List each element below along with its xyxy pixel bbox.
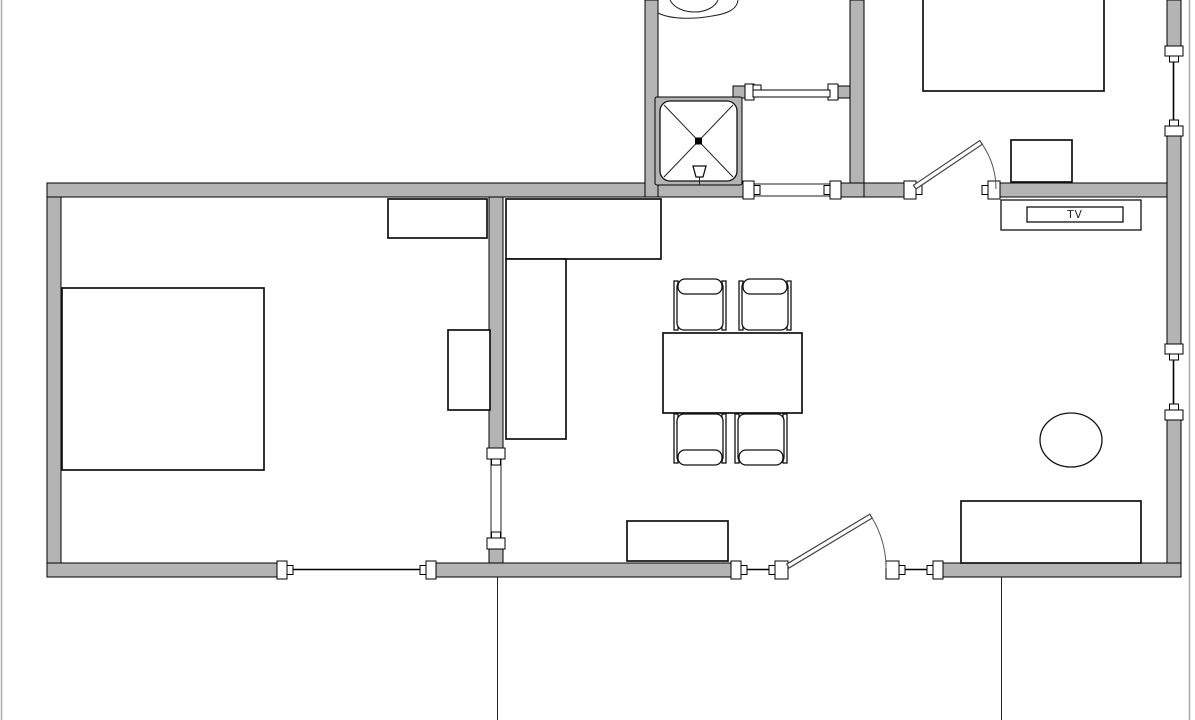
kitchen-counter-top-run xyxy=(506,199,661,259)
chair-backrest xyxy=(678,450,722,465)
window-bedroom1-bottom[interactable] xyxy=(277,561,436,579)
door-jamb xyxy=(904,181,916,199)
window-right-upper[interactable] xyxy=(1165,46,1183,136)
opening-jamb xyxy=(743,181,754,199)
bed-bedroom1[interactable] xyxy=(62,288,264,470)
opening-jamb xyxy=(830,181,841,199)
window-jamb xyxy=(277,561,287,579)
window-jamb-tab xyxy=(1170,404,1179,410)
opening-jamb xyxy=(487,448,505,459)
window-jamb-tab xyxy=(1170,354,1179,360)
bedroom2-door[interactable] xyxy=(904,141,1000,199)
window-jamb xyxy=(426,561,436,579)
shower-head-icon xyxy=(693,166,706,177)
oval-side-table[interactable] xyxy=(1040,413,1102,467)
wall-opening-bedroom1[interactable] xyxy=(487,448,505,549)
opening-jamb xyxy=(487,538,505,549)
floor-plan-canvas: TV xyxy=(0,0,1195,720)
sideboard[interactable] xyxy=(627,521,728,561)
door-jamb xyxy=(988,181,1000,199)
bathroom-sliding-door[interactable] xyxy=(745,84,838,100)
window-jamb xyxy=(1165,410,1183,420)
chair-backrest xyxy=(743,279,787,294)
dresser-bedroom1[interactable] xyxy=(388,199,487,238)
door-jamb-tab xyxy=(769,566,775,575)
wall-bedroom2-right-of-door xyxy=(1000,183,1167,197)
door-jamb xyxy=(775,561,788,579)
wall-right-bottom xyxy=(1167,420,1181,577)
kitchen-counter-left-run xyxy=(506,259,566,439)
dining-chair-bottom-left[interactable] xyxy=(674,414,726,465)
sliding-door-panel xyxy=(753,90,830,97)
window-jamb-tab xyxy=(741,566,747,575)
sofa[interactable] xyxy=(961,501,1141,563)
window-jamb xyxy=(1165,344,1183,354)
door-leaf xyxy=(913,141,982,189)
tv-label: TV xyxy=(1066,209,1083,221)
dining-table[interactable] xyxy=(663,333,802,413)
wall-opening-hall[interactable] xyxy=(743,181,841,199)
dining-chair-top-right[interactable] xyxy=(739,279,791,330)
window-jamb xyxy=(1165,46,1183,56)
window-jamb-tab xyxy=(287,566,293,575)
window-jamb xyxy=(933,561,943,579)
chair-backrest xyxy=(678,279,722,294)
opening-jamb-tab xyxy=(492,532,501,538)
window-jamb-tab xyxy=(1170,120,1179,126)
wall-bottom-center-segment xyxy=(436,563,731,577)
window-terrace-right[interactable] xyxy=(899,561,943,579)
shower-drain xyxy=(695,138,702,145)
bed-bedroom2[interactable] xyxy=(923,0,1104,91)
door-swing-arc xyxy=(872,518,886,568)
dining-chair-top-left[interactable] xyxy=(674,279,726,330)
wall-bottom-left-segment xyxy=(47,563,277,577)
door-jamb-tab xyxy=(982,186,988,195)
window-terrace-left[interactable] xyxy=(731,561,775,579)
wall-bottom-right-segment xyxy=(942,563,1181,577)
window-jamb-tab xyxy=(1170,56,1179,62)
window-right-lower[interactable] xyxy=(1165,344,1183,420)
opening-jamb-tab xyxy=(492,459,501,465)
window-jamb xyxy=(1165,126,1183,136)
dining-chair-bottom-right[interactable] xyxy=(735,414,787,465)
kitchen-counter[interactable] xyxy=(506,199,661,439)
wall-right-middle xyxy=(1167,136,1181,344)
floor-plan-svg: TV xyxy=(0,0,1195,720)
opening-jamb-tab xyxy=(824,186,830,195)
wall-left-exterior xyxy=(47,183,61,577)
shower[interactable] xyxy=(655,97,742,185)
door-leaf xyxy=(787,514,872,568)
door-jamb xyxy=(886,561,899,579)
opening-gap xyxy=(754,183,830,197)
toilet[interactable] xyxy=(658,0,738,18)
wall-top-main xyxy=(47,183,658,197)
nightstand-bedroom2[interactable] xyxy=(1011,140,1072,182)
wall-partition-bedroom1 xyxy=(489,197,503,448)
window-jamb-tab xyxy=(927,566,933,575)
opening-gap xyxy=(490,459,502,538)
desk-bedroom1[interactable] xyxy=(448,330,490,410)
terrace-door[interactable] xyxy=(769,514,905,579)
window-jamb-tab xyxy=(420,566,426,575)
wall-bathroom-bedroom-divider xyxy=(850,0,864,197)
tv-cabinet[interactable]: TV xyxy=(1001,200,1141,230)
toilet-outline xyxy=(658,0,738,18)
opening-jamb-tab xyxy=(754,186,760,195)
toilet-bowl xyxy=(670,0,718,12)
wall-bedroom2-left-of-door xyxy=(864,183,905,197)
chair-backrest xyxy=(739,450,783,465)
wall-partition-bedroom1-stub xyxy=(489,549,503,563)
door-jamb-tab xyxy=(899,566,905,575)
window-jamb xyxy=(731,561,741,579)
wall-hall-right xyxy=(840,183,865,197)
wall-right-top xyxy=(1167,0,1181,46)
